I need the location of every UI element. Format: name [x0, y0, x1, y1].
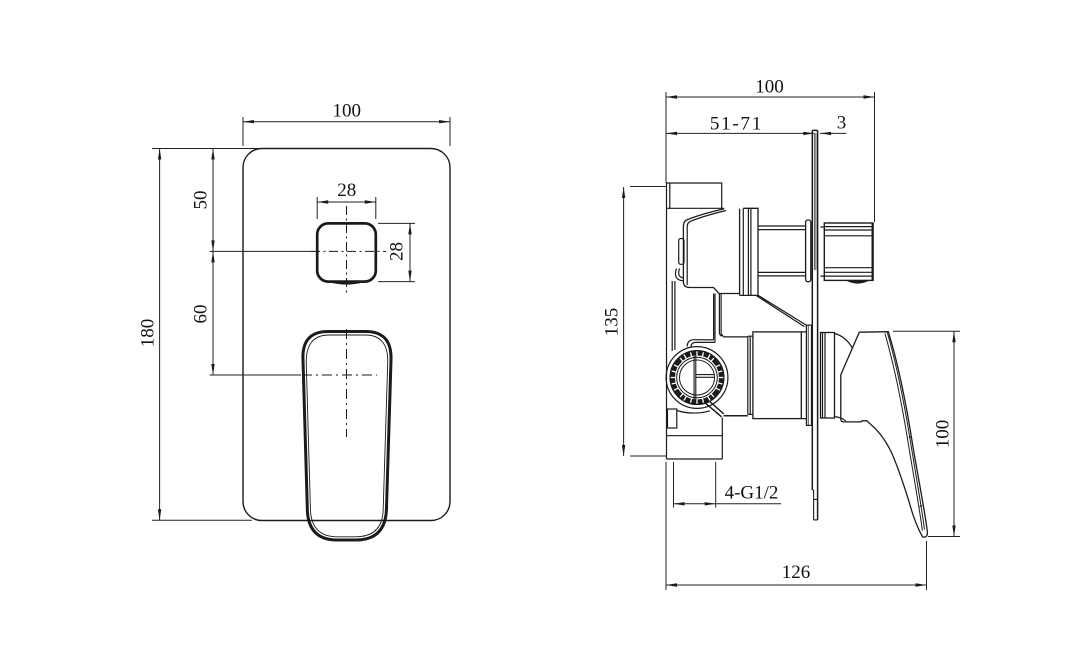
- svg-text:28: 28: [387, 242, 408, 261]
- svg-text:126: 126: [782, 562, 811, 583]
- svg-text:180: 180: [138, 319, 159, 348]
- svg-text:60: 60: [191, 305, 212, 324]
- svg-text:51-71: 51-71: [710, 114, 763, 135]
- svg-text:50: 50: [191, 191, 212, 210]
- svg-text:100: 100: [755, 77, 784, 98]
- svg-text:100: 100: [332, 101, 361, 122]
- svg-text:4-G1/2: 4-G1/2: [725, 483, 779, 504]
- svg-text:135: 135: [602, 308, 623, 337]
- svg-text:100: 100: [933, 420, 954, 449]
- svg-text:3: 3: [837, 113, 847, 134]
- svg-text:28: 28: [337, 180, 356, 201]
